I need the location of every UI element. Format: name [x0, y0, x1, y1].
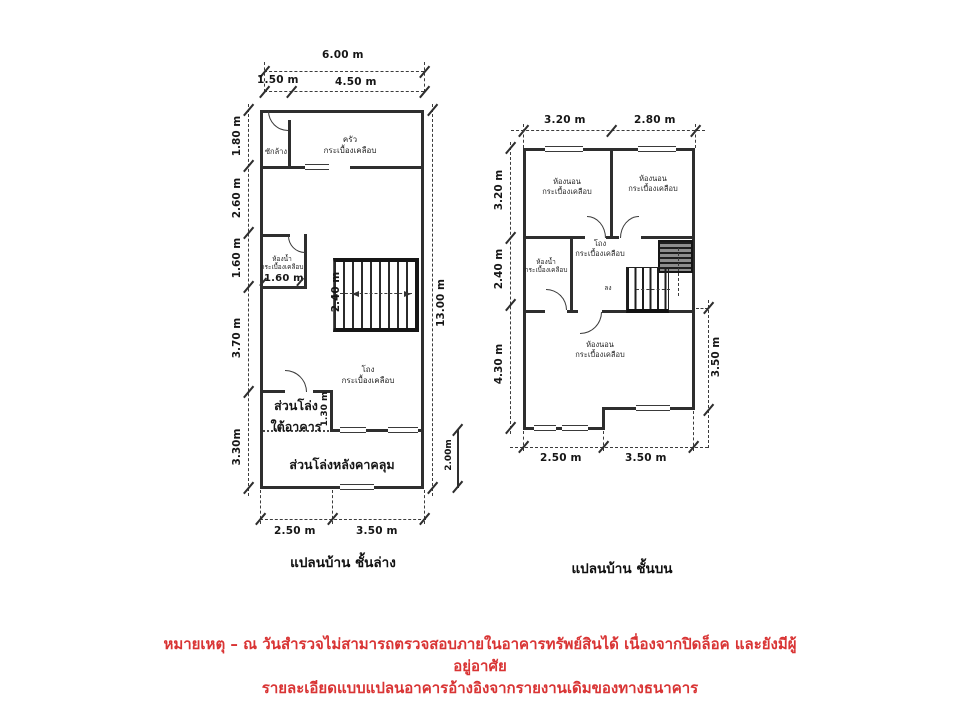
room-label-bedroom1: ห้องนอน กระเบื้องเคลือบ	[525, 177, 609, 197]
door-arc	[285, 370, 307, 392]
room-label-line: กระเบื้องเคลือบ	[525, 187, 609, 197]
dim-seg: 1.50 m	[257, 74, 299, 86]
room-label-line: ซักล้าง	[254, 147, 298, 157]
dimension-line	[260, 519, 426, 520]
window-symbol	[562, 425, 588, 431]
wall	[692, 148, 695, 410]
room-label-laundry: ซักล้าง	[254, 147, 298, 157]
dim-right-lower: 2.00m	[444, 425, 454, 485]
dimension-line	[708, 300, 709, 448]
dimension-line	[510, 142, 511, 434]
room-label-line: กระเบื้องเคลือบ	[256, 263, 308, 271]
dim-left: 3.20 m	[493, 160, 505, 220]
window-symbol	[340, 427, 366, 433]
door-arc	[620, 216, 639, 238]
room-label-kitchen: ครัว กระเบื้องเคลือบ	[308, 135, 392, 157]
room-label-bathroom: ห้องน้ำ กระเบื้องเคลือบ	[519, 258, 573, 275]
dim-left: 1.60 m	[231, 228, 243, 288]
room-label-line: โถง	[562, 239, 638, 249]
door-arc	[587, 216, 606, 238]
survey-note: หมายเหตุ – ณ วันสำรวจไม่สามารถตรวจสอบภาย…	[0, 633, 960, 699]
wall	[260, 286, 307, 289]
room-label-line: โถง	[326, 365, 410, 376]
dim-bottom: 3.50 m	[356, 525, 398, 537]
room-label-line: ใต้อาคาร	[256, 417, 336, 438]
stair-direction-label: ลง	[598, 284, 618, 292]
room-label-bedroom3: ห้องนอน กระเบื้องเคลือบ	[558, 340, 642, 360]
room-label-line: กระเบื้องเคลือบ	[519, 266, 573, 274]
dim-bottom: 2.50 m	[274, 525, 316, 537]
staircase-lower-flight	[626, 267, 669, 313]
wall	[602, 407, 605, 430]
dim-left: 2.60 m	[231, 168, 243, 228]
dim-stair-width: 2.40 m	[330, 262, 342, 322]
door-arc	[268, 111, 288, 131]
dim-seg: 4.50 m	[335, 76, 377, 88]
dim-left: 4.30 m	[493, 334, 505, 394]
stair-arrow-icon	[352, 291, 359, 297]
dim-left: 3.70 m	[231, 308, 243, 368]
window-symbol	[340, 484, 374, 490]
dimension-line	[511, 130, 705, 131]
room-label-line: กระเบื้องเคลือบ	[562, 249, 638, 259]
stair-direction-line	[340, 293, 412, 294]
door-arc	[546, 289, 567, 310]
wall	[288, 120, 291, 168]
dimension-line	[457, 429, 459, 488]
dimension-line	[510, 447, 708, 448]
wall	[421, 110, 424, 489]
wall	[350, 166, 421, 169]
dim-left: 1.80 m	[231, 106, 243, 166]
dim-total-width: 6.00 m	[322, 49, 364, 61]
dim-left: 2.40 m	[493, 239, 505, 299]
dimension-line	[264, 91, 424, 92]
stair-arrow-icon	[404, 291, 411, 297]
stair-direction-line	[636, 289, 670, 290]
room-label-hall: โถง กระเบื้องเคลือบ	[562, 239, 638, 259]
window-symbol	[305, 164, 329, 170]
dimension-guide	[695, 124, 696, 148]
window-symbol	[545, 146, 583, 152]
dim-left: 3.30m	[231, 417, 243, 477]
room-label-bathroom: ห้องน้ำ กระเบื้องเคลือบ	[256, 255, 308, 272]
room-label-line: ห้องนอน	[558, 340, 642, 350]
dim-right-total: 13.00 m	[435, 273, 447, 333]
dim-bottom: 2.50 m	[540, 452, 582, 464]
room-label-line: ครัว	[308, 135, 392, 146]
dimension-line	[264, 71, 424, 72]
dimension-guide	[523, 124, 524, 148]
room-label-line: กระเบื้องเคลือบ	[615, 184, 691, 194]
room-label-line: ลง	[598, 284, 618, 292]
room-label-bedroom2: ห้องนอน กระเบื้องเคลือบ	[615, 174, 691, 194]
room-label-open-under: ส่วนโล่ง ใต้อาคาร	[256, 396, 336, 437]
room-label-line: กระเบื้องเคลือบ	[558, 350, 642, 360]
room-label-line: ห้องนอน	[615, 174, 691, 184]
door-arc	[580, 312, 602, 334]
wall	[523, 310, 545, 313]
window-symbol	[534, 425, 556, 431]
ground-plan-caption: แปลนบ้าน ชั้นล่าง	[273, 551, 413, 573]
dim-right: 3.50 m	[710, 327, 722, 387]
wall	[641, 236, 692, 239]
door-arc	[288, 236, 305, 253]
survey-note-line2: อยู่อาศัย	[0, 655, 960, 677]
dim-top: 2.80 m	[634, 114, 676, 126]
wall	[260, 390, 285, 393]
floor-plan-document: 6.00 m 1.50 m 4.50 m 1.80 m 2.60 m 1.60 …	[0, 0, 960, 720]
window-symbol	[636, 405, 670, 411]
room-label-line: ส่วนโล่งหลังคาคลุม	[258, 455, 426, 476]
room-label-line: กระเบื้องเคลือบ	[308, 146, 392, 157]
wall	[567, 310, 578, 313]
survey-note-line1: หมายเหตุ – ณ วันสำรวจไม่สามารถตรวจสอบภาย…	[0, 633, 960, 655]
room-label-line: กระเบื้องเคลือบ	[326, 376, 410, 387]
dim-top: 3.20 m	[544, 114, 586, 126]
survey-note-line3: รายละเอียดแบบแปลนอาคารอ้างอิงจากรายงานเด…	[0, 677, 960, 699]
dimension-line	[432, 104, 433, 496]
room-label-hall: โถง กระเบื้องเคลือบ	[326, 365, 410, 387]
stair-direction-line	[678, 248, 679, 296]
upper-plan-caption: แปลนบ้าน ชั้นบน	[552, 557, 692, 579]
room-label-open-roofed: ส่วนโล่งหลังคาคลุม	[258, 455, 426, 476]
window-symbol	[638, 146, 676, 152]
dimension-guide	[424, 62, 425, 92]
dim-bottom: 3.50 m	[625, 452, 667, 464]
room-label-line: ห้องนอน	[525, 177, 609, 187]
window-symbol	[388, 427, 418, 433]
room-label-line: ส่วนโล่ง	[256, 396, 336, 417]
wall	[610, 148, 613, 238]
wall	[260, 234, 290, 237]
